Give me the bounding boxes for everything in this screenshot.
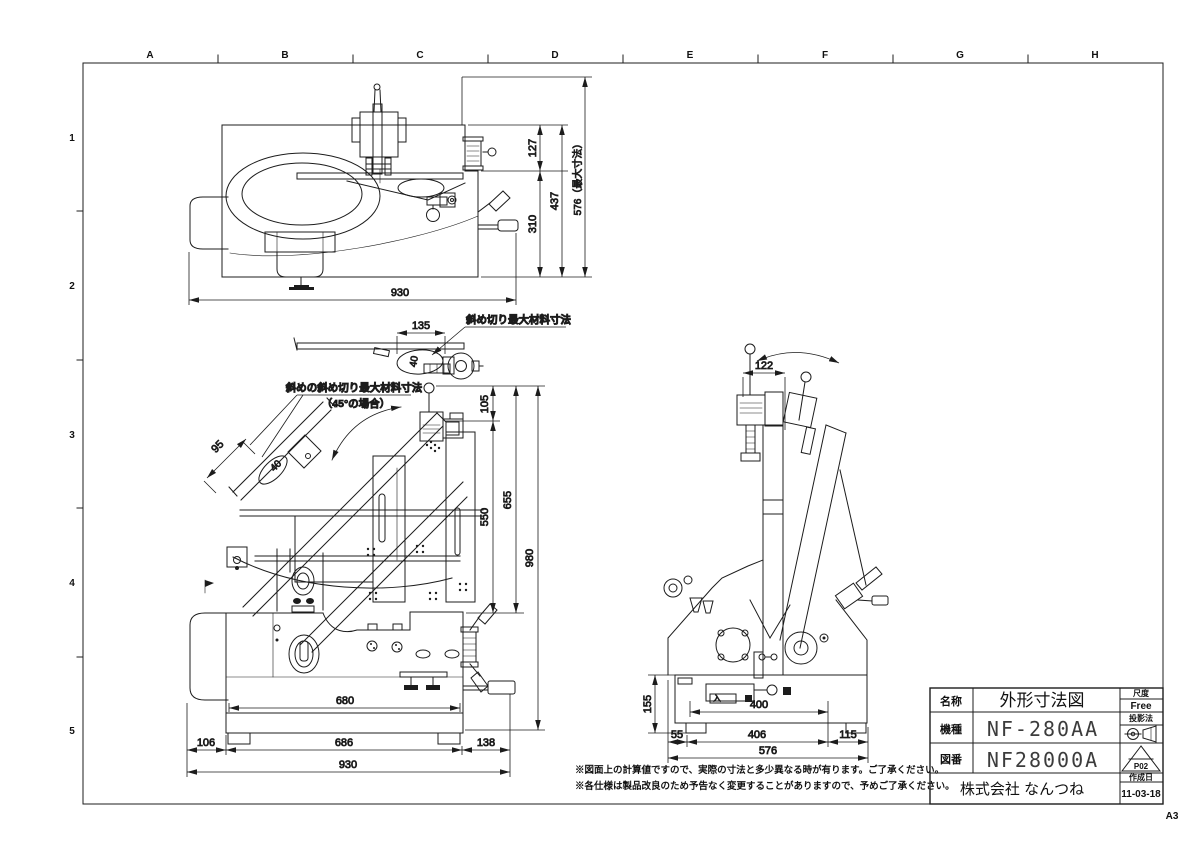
- side-view-dimensions: 122 155 400 55 406 115 576 入: [642, 352, 868, 763]
- dim-front-930: 930: [339, 759, 357, 771]
- dim-front-138: 138: [477, 737, 495, 749]
- title-model-label: 機種: [940, 722, 962, 736]
- title-drawing-no-value: NF28000A: [987, 748, 1099, 772]
- row-label-5: 5: [69, 726, 75, 737]
- row-label-3: 3: [69, 430, 75, 441]
- title-block: 名称 外形寸法図 尺度 Free 機種 NF-280AA 投影法 図番 NF28…: [930, 688, 1163, 804]
- col-label-g: G: [956, 50, 964, 61]
- dim-side-576: 576: [759, 745, 777, 757]
- dim-detail-135: 135: [412, 320, 430, 332]
- dim-front-95: 95: [209, 438, 226, 455]
- dim-side-155: 155: [642, 695, 654, 713]
- row-label-4: 4: [69, 578, 75, 589]
- dim-top-930: 930: [391, 287, 409, 299]
- dim-top-437: 437: [549, 192, 561, 210]
- drawing-sheet: A B C D E F G H 1 2 3 4 5 A3: [0, 0, 1191, 842]
- cut-detail-view: [294, 338, 483, 379]
- top-view: [190, 84, 518, 290]
- sheet-size-label: A3: [1166, 811, 1179, 822]
- title-date-label: 作成日: [1129, 772, 1153, 782]
- col-label-h: H: [1091, 50, 1098, 61]
- col-label-a: A: [146, 50, 153, 61]
- dim-side-400: 400: [750, 699, 768, 711]
- title-company: 株式会社 なんつね: [960, 781, 1084, 798]
- title-date-value: 11-03-18: [1121, 789, 1161, 800]
- col-label-d: D: [551, 50, 558, 61]
- label-max-cut-size: 斜め切り最大材料寸法: [465, 313, 571, 326]
- title-scale-label: 尺度: [1133, 688, 1150, 698]
- front-view: [190, 383, 515, 744]
- side-view: [664, 344, 888, 733]
- dim-top-310: 310: [527, 215, 539, 233]
- row-labels: 1 2 3 4 5: [69, 133, 75, 737]
- dim-front-550: 550: [479, 508, 491, 526]
- row-label-1: 1: [69, 133, 75, 144]
- dim-side-406: 406: [748, 729, 766, 741]
- dim-front-680: 680: [336, 695, 354, 707]
- note-line-1: ※図面上の計算値ですので、実際の寸法と多少異なる時が有ります。ご了承ください。: [575, 764, 944, 776]
- drawer-label: 入: [713, 694, 721, 703]
- dim-top-576max: 576（最大寸法）: [571, 139, 584, 216]
- third-angle-projection-icon: [1125, 726, 1156, 742]
- col-label-e: E: [687, 50, 694, 61]
- title-model-value: NF-280AA: [987, 717, 1099, 741]
- title-revision: P02: [1134, 762, 1149, 771]
- drawing-canvas: A B C D E F G H 1 2 3 4 5 A3: [0, 0, 1191, 842]
- label-45-case: （45°の場合）: [322, 397, 390, 410]
- dim-side-122: 122: [755, 360, 773, 372]
- title-drawing-no-label: 図番: [940, 752, 963, 766]
- col-label-f: F: [822, 50, 828, 61]
- title-name-label: 名称: [940, 694, 962, 708]
- title-name-value: 外形寸法図: [1000, 691, 1085, 710]
- title-projection-label: 投影法: [1129, 713, 1153, 723]
- dim-front-655: 655: [502, 491, 514, 509]
- dim-front-980: 980: [524, 549, 536, 567]
- dim-detail-40: 40: [408, 355, 421, 368]
- label-45-cut: 斜めの斜め切り最大材料寸法: [285, 381, 423, 394]
- dim-side-55: 55: [671, 729, 683, 741]
- dim-top-127: 127: [527, 139, 539, 157]
- title-scale-value: Free: [1130, 701, 1152, 712]
- cut-detail-dimensions: 135 40 斜め切り最大材料寸法: [397, 313, 571, 368]
- note-line-2: ※各仕様は製品改良のため予告なく変更することがありますので、予めご了承ください。: [575, 780, 955, 792]
- dim-front-106: 106: [197, 737, 215, 749]
- col-label-b: B: [281, 50, 288, 61]
- dim-front-686: 686: [335, 737, 353, 749]
- dim-front-105: 105: [479, 395, 491, 413]
- notes: ※図面上の計算値ですので、実際の寸法と多少異なる時が有ります。ご了承ください。 …: [575, 764, 955, 792]
- col-label-c: C: [416, 50, 423, 61]
- dim-side-115: 115: [839, 729, 857, 741]
- row-label-2: 2: [69, 281, 75, 292]
